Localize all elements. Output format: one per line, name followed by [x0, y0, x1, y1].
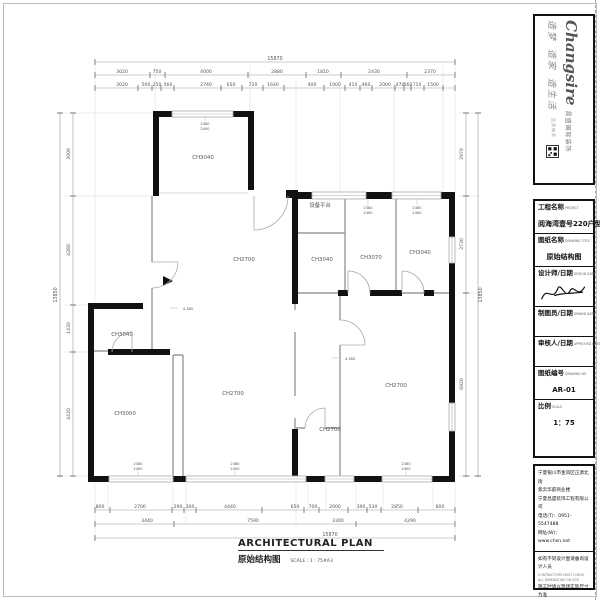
- dim-label: 2000: [329, 504, 341, 510]
- disclaimer-2: 施工时请以现场实际尺寸为准: [538, 584, 590, 600]
- dim-label: 3300: [332, 518, 344, 524]
- dim-label: 13850: [53, 287, 59, 302]
- dim-label: 500: [142, 82, 151, 88]
- svg-text:2400: 2400: [363, 211, 373, 215]
- sheet-footer: ARCHITECTURAL PLAN 原始结构图 SCALE : 1 : 75#…: [238, 538, 438, 565]
- project-label: 工程名称PROJECT: [535, 201, 593, 214]
- dimension-labels: 15870 3020 750 4000 2880 1810 2430 2370 …: [53, 56, 484, 538]
- scale-label: 比例SCALE: [535, 400, 593, 413]
- room-label: CH3040: [409, 250, 431, 256]
- room-label: 设备平台: [309, 201, 331, 209]
- dimension-lines: [57, 59, 481, 541]
- disclaimer-1-en: CONTRACTORS MUST CHECK ALL DIMENSIONS ON…: [538, 573, 590, 584]
- svg-text:2380: 2380: [230, 462, 240, 466]
- dim-label: 4440: [224, 504, 236, 510]
- svg-text:2400: 2400: [401, 467, 411, 471]
- dim-label: 3000: [66, 148, 72, 160]
- svg-text:2380: 2380: [412, 206, 422, 210]
- dim-label: 300: [186, 504, 195, 510]
- dim-label: 13850: [478, 287, 484, 302]
- dim-label: 400: [308, 82, 317, 88]
- dim-label: 800: [436, 504, 445, 510]
- project-name: 阅海湾壹号220户型图: [535, 214, 593, 234]
- drawing-title: 原始结构图: [535, 247, 593, 267]
- svg-text:2400: 2400: [200, 127, 210, 131]
- dim-label: 410: [349, 82, 358, 88]
- svg-text:2380: 2380: [363, 206, 373, 210]
- dim-label: 1430: [66, 322, 72, 334]
- dim-label: 15870: [267, 56, 282, 62]
- svg-text:4.380: 4.380: [345, 357, 356, 361]
- designer-label: 设计师/日期DESIGN DATE: [535, 267, 593, 280]
- logo-block: Changsire 昌盛国际装饰 造梦 造家 造生活 品质饰家: [533, 14, 595, 185]
- doors: [112, 196, 424, 428]
- room-label: CH2700: [222, 391, 244, 397]
- slogan-word: 造梦: [547, 20, 560, 42]
- dim-label: 1810: [317, 69, 329, 75]
- dim-label: 650: [291, 504, 300, 510]
- room-label: CH3040: [311, 257, 333, 263]
- drafter-field: [535, 320, 593, 337]
- room-label: CH2700: [319, 427, 341, 433]
- title-block: 工程名称PROJECT 阅海湾壹号220户型图 图纸名称DRAWING TITL…: [533, 199, 595, 458]
- dim-label: 290: [174, 504, 183, 510]
- divider: [535, 551, 593, 552]
- slogan-word: 造家: [547, 49, 560, 71]
- drafter-label: 制图员/日期DRAWN DATE: [535, 307, 593, 320]
- company-name: 宁夏昌盛装饰工程有限公司: [538, 496, 590, 513]
- dim-label: 250: [153, 82, 162, 88]
- brand-logo: Changsire: [563, 20, 581, 106]
- company-website: 网址(W)：www.chsn.net: [538, 530, 590, 547]
- dim-label: 700: [309, 504, 318, 510]
- svg-text:2400: 2400: [133, 467, 143, 471]
- windows: [109, 111, 455, 482]
- dim-label: 2430: [368, 69, 380, 75]
- qr-code-icon: [547, 145, 560, 158]
- dim-label: 720: [249, 82, 258, 88]
- svg-text:2400: 2400: [412, 211, 422, 215]
- dim-label: 6920: [459, 378, 465, 390]
- room-label: CH3000: [114, 411, 136, 417]
- dim-label: 2700: [134, 504, 146, 510]
- room-label: CH2700: [233, 257, 255, 263]
- dim-label: 3730: [459, 238, 465, 250]
- dim-label: 800: [96, 504, 105, 510]
- dim-label: 2000: [379, 82, 391, 88]
- svg-text:2380: 2380: [401, 462, 411, 466]
- company-address-1: 宁夏银川市金凤区正源北街: [538, 470, 590, 487]
- auditor-label: 审核人/日期APPROVED DATE: [535, 337, 593, 350]
- dim-label: 3020: [116, 69, 128, 75]
- company-phone: 电话(T)：0951-5547488: [538, 513, 590, 530]
- dim-label: 1640: [267, 82, 279, 88]
- dim-label: 560: [404, 82, 413, 88]
- dim-label: 460: [362, 82, 371, 88]
- svg-text:2400: 2400: [230, 467, 240, 471]
- footer-underline: [238, 550, 384, 551]
- extension-lines: [64, 62, 480, 540]
- dim-label: 1500: [427, 82, 439, 88]
- signature-icon: [538, 281, 592, 305]
- dim-label: 390: [357, 504, 366, 510]
- dim-label: 2370: [424, 69, 436, 75]
- interior-walls: [94, 193, 449, 476]
- svg-text:4.380: 4.380: [183, 307, 194, 311]
- dim-label: 2740: [200, 82, 212, 88]
- drawing-number: AR-01: [535, 380, 593, 400]
- footer-title-cn: 原始结构图: [238, 553, 281, 565]
- window-annotations: 2380 2400 2380 2400 2380 2400 2380 2400 …: [133, 117, 422, 476]
- disclaimer-1: 如有不同设计图请垂询设计人员: [538, 556, 590, 573]
- dim-label: 7590: [247, 518, 259, 524]
- company-block: 宁夏银川市金凤区正源北街 紫云华庭商业楼 宁夏昌盛装饰工程有限公司 电话(T)：…: [533, 464, 595, 590]
- drawing-title-label: 图纸名称DRAWING TITLE: [535, 234, 593, 247]
- dim-label: 560: [164, 82, 173, 88]
- dim-label: 2880: [271, 69, 283, 75]
- room-label: CH2700: [385, 383, 407, 389]
- brand-tagline: 品质饰家: [550, 118, 556, 138]
- dim-label: 4290: [404, 518, 416, 524]
- brand-name-cn: 昌盛国际装饰: [565, 110, 572, 152]
- dim-label: 650: [227, 82, 236, 88]
- footer-scale-note: SCALE : 1 : 75#A3: [291, 559, 333, 564]
- dim-label: 530: [369, 504, 378, 510]
- dim-label: 4280: [66, 244, 72, 256]
- drawing-sheet: 15870 3020 750 4000 2880 1810 2430 2370 …: [0, 0, 600, 600]
- drawing-number-label: 图纸编号DRAWING NO: [535, 367, 593, 380]
- room-label: CH3040: [111, 332, 133, 338]
- dim-label: 4420: [66, 408, 72, 420]
- dim-label: 2850: [391, 504, 403, 510]
- dim-label: 3440: [141, 518, 153, 524]
- designer-signature: [535, 280, 593, 307]
- company-address-2: 紫云华庭商业楼: [538, 487, 590, 496]
- svg-text:2380: 2380: [200, 122, 210, 126]
- dim-label: 3020: [116, 82, 128, 88]
- slogan-word: 造生活: [547, 78, 560, 111]
- dim-label: 750: [153, 69, 162, 75]
- room-label: CH3040: [192, 155, 214, 161]
- footer-title-en: ARCHITECTURAL PLAN: [238, 538, 438, 549]
- walls: [88, 111, 455, 482]
- dim-label: 4000: [200, 69, 212, 75]
- scale-value: 1：75: [535, 413, 593, 433]
- room-label: CH3070: [360, 255, 382, 261]
- floor-plan-svg: 15870 3020 750 4000 2880 1810 2430 2370 …: [0, 0, 600, 600]
- dim-label: 710: [413, 82, 422, 88]
- title-panel: Changsire 昌盛国际装饰 造梦 造家 造生活 品质饰家: [533, 0, 597, 600]
- dim-label: 2970: [459, 148, 465, 160]
- svg-text:2380: 2380: [133, 462, 143, 466]
- dim-label: 1000: [329, 82, 341, 88]
- auditor-field: [535, 350, 593, 367]
